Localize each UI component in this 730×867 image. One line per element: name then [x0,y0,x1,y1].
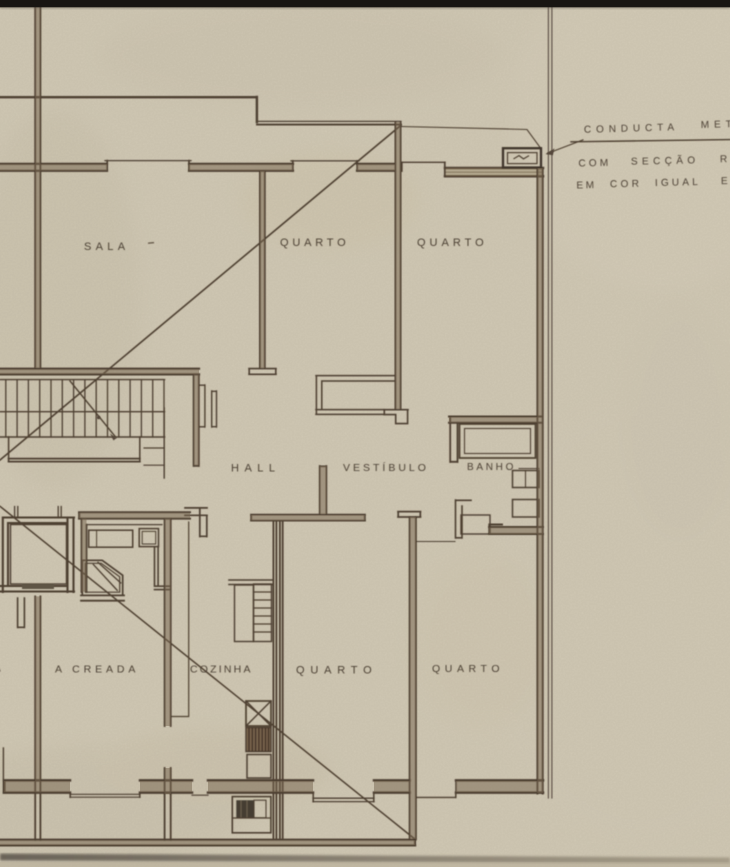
svg-text:VESTÍBULO: VESTÍBULO [343,461,429,474]
svg-text:IGUAL: IGUAL [655,177,701,189]
svg-text:SALA: SALA [84,241,129,253]
svg-text:BANHO: BANHO [467,462,516,473]
svg-text:MET: MET [701,119,730,131]
svg-text:EM: EM [576,180,596,191]
svg-text:COM: COM [578,158,611,170]
svg-text:RE: RE [720,154,730,165]
svg-text:QUARTO: QUARTO [280,237,349,249]
svg-text:COZINHA: COZINHA [190,664,253,676]
svg-text:QUARTO: QUARTO [432,663,504,675]
svg-text:QUARTO: QUARTO [417,237,488,249]
svg-text:COR: COR [610,179,643,191]
svg-text:HALL: HALL [231,463,281,475]
svg-text:QUARTO: QUARTO [296,665,377,677]
svg-text:A CREADA: A CREADA [55,664,139,676]
svg-text:E: E [721,176,730,187]
